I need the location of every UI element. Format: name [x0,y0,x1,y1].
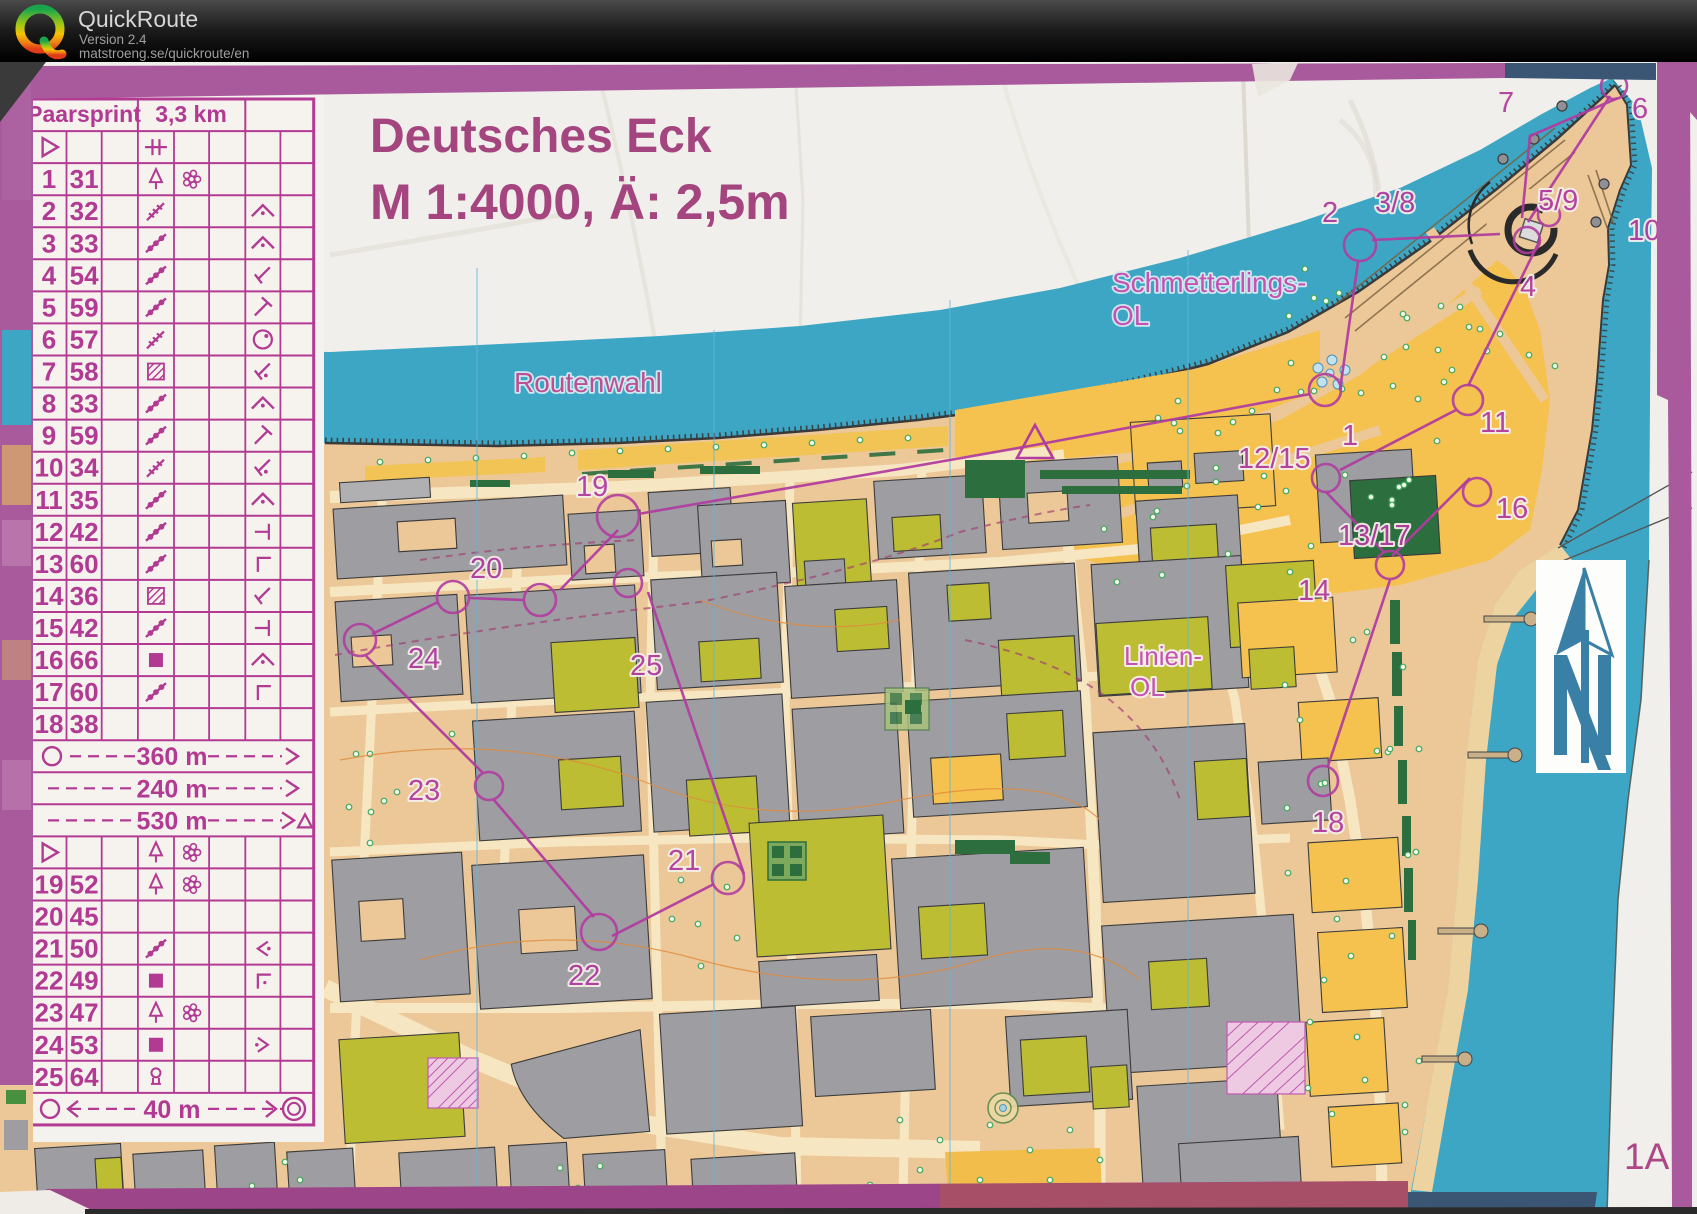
svg-text:13: 13 [34,549,63,579]
svg-text:53: 53 [70,1030,99,1060]
svg-text:21: 21 [34,934,63,964]
svg-text:38: 38 [70,709,99,739]
svg-text:Routenwahl: Routenwahl [514,367,662,398]
svg-text:4: 4 [42,260,57,290]
svg-text:64: 64 [70,1062,99,1092]
svg-text:34: 34 [70,453,99,483]
svg-text:24: 24 [408,643,440,675]
svg-text:60: 60 [70,549,99,579]
svg-text:matstroeng.se/quickroute/en: matstroeng.se/quickroute/en [79,46,249,61]
svg-text:3,3 km: 3,3 km [155,101,227,127]
svg-text:33: 33 [70,389,99,419]
svg-text:35: 35 [70,485,99,515]
svg-text:59: 59 [70,421,99,451]
svg-text:42: 42 [70,613,99,643]
svg-text:Linien-: Linien- [1124,641,1202,671]
svg-text:11: 11 [1480,407,1510,439]
svg-text:36: 36 [70,581,99,611]
svg-text:25: 25 [630,650,662,682]
svg-text:5/9: 5/9 [1538,185,1578,217]
svg-text:31: 31 [70,164,99,194]
svg-text:1: 1 [1342,420,1358,452]
svg-text:6: 6 [1632,93,1648,125]
svg-text:QuickRoute: QuickRoute [78,6,198,32]
svg-text:12/15: 12/15 [1238,443,1311,475]
svg-text:16: 16 [1496,493,1528,525]
svg-text:3/8: 3/8 [1375,187,1415,219]
svg-text:42: 42 [70,517,99,547]
svg-text:50: 50 [70,934,99,964]
svg-text:4: 4 [1520,271,1536,303]
svg-text:60: 60 [70,677,99,707]
svg-text:240 m: 240 m [137,775,208,803]
svg-text:15: 15 [34,613,63,643]
svg-text:7: 7 [42,357,56,387]
svg-text:14: 14 [1298,575,1330,607]
svg-text:18: 18 [1312,807,1344,839]
svg-text:20: 20 [470,553,502,585]
svg-text:OL: OL [1112,300,1149,331]
svg-text:OL: OL [1130,672,1165,702]
svg-text:7: 7 [1498,87,1514,119]
svg-text:13/17: 13/17 [1338,520,1411,552]
svg-text:10: 10 [34,453,63,483]
svg-text:10: 10 [1628,215,1660,247]
svg-text:M 1:4000, Ä: 2,5m: M 1:4000, Ä: 2,5m [370,174,790,230]
svg-text:11: 11 [35,485,63,515]
svg-text:2: 2 [1322,197,1338,229]
svg-text:8: 8 [42,389,56,419]
svg-text:530 m: 530 m [137,807,208,835]
svg-text:24: 24 [34,1030,63,1060]
svg-text:58: 58 [70,357,99,387]
svg-text:47: 47 [70,998,99,1028]
svg-text:22: 22 [34,966,63,996]
svg-text:52: 52 [70,869,99,899]
svg-text:19: 19 [34,869,63,899]
svg-text:1A: 1A [1624,1136,1670,1177]
svg-text:32: 32 [70,196,99,226]
svg-text:Paarsprint: Paarsprint [27,101,141,127]
svg-text:33: 33 [70,228,99,258]
svg-text:22: 22 [568,960,600,992]
svg-text:17: 17 [34,677,63,707]
svg-text:3: 3 [42,228,56,258]
svg-text:Version 2.4: Version 2.4 [79,32,147,47]
svg-text:23: 23 [408,775,440,807]
svg-text:21: 21 [668,845,700,877]
svg-text:25: 25 [34,1062,63,1092]
svg-text:360 m: 360 m [137,743,208,771]
svg-text:6: 6 [42,324,56,354]
svg-text:9: 9 [42,421,56,451]
svg-text:1: 1 [42,164,56,194]
svg-text:54: 54 [70,260,99,290]
svg-text:14: 14 [34,581,63,611]
svg-text:12: 12 [34,517,63,547]
svg-text:40 m: 40 m [144,1096,201,1124]
svg-text:19: 19 [576,471,608,503]
svg-text:66: 66 [70,645,99,675]
svg-text:59: 59 [70,292,99,322]
svg-text:2: 2 [42,196,56,226]
svg-text:Schmetterlings-: Schmetterlings- [1112,267,1307,298]
svg-text:Deutsches Eck: Deutsches Eck [370,110,712,163]
svg-text:45: 45 [70,902,99,932]
svg-text:18: 18 [34,709,63,739]
svg-text:49: 49 [70,966,99,996]
svg-text:57: 57 [70,324,99,354]
svg-text:20: 20 [34,902,63,932]
svg-text:16: 16 [34,645,63,675]
svg-text:23: 23 [34,998,63,1028]
svg-text:5: 5 [42,292,56,322]
